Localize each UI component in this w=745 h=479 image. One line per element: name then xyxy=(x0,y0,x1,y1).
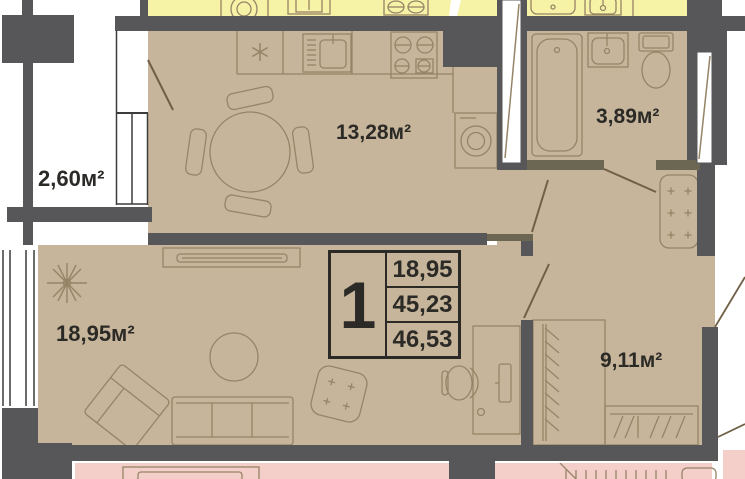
floor-plan-drawing xyxy=(0,0,745,479)
bathroom-wall-right xyxy=(656,160,700,170)
hall-right-wall xyxy=(697,163,715,256)
bottom-wall xyxy=(38,445,718,461)
bathroom-wall-left xyxy=(527,160,604,170)
duct-block xyxy=(443,31,497,67)
living-room-window xyxy=(0,248,38,406)
right-window xyxy=(697,52,712,163)
bedroom-right-wall xyxy=(702,327,718,447)
balcony-bottom-wall xyxy=(7,207,152,222)
unit-number: 1 xyxy=(331,253,387,356)
floor-plan: 2,60м² 13,28м² 3,89м² 18,95м² 9,11м² 1 1… xyxy=(0,0,745,479)
threshold xyxy=(487,234,533,241)
bathroom-floor xyxy=(527,31,687,170)
unit-info-card: 1 18,95 45,23 46,53 xyxy=(328,250,461,359)
unit-total-area: 46,53 xyxy=(387,323,458,356)
unit-living-area: 18,95 xyxy=(387,253,458,288)
kitchen-living-wall xyxy=(148,233,487,245)
pilaster-block xyxy=(2,15,74,63)
vent-shaft xyxy=(502,0,521,163)
top-wall xyxy=(115,16,745,31)
boundary-lines xyxy=(715,277,745,437)
unit-area-no-balcony: 45,23 xyxy=(387,288,458,323)
balcony-door-window xyxy=(116,31,148,205)
plant-icon xyxy=(47,263,87,303)
bedroom-left-wall xyxy=(521,320,533,447)
